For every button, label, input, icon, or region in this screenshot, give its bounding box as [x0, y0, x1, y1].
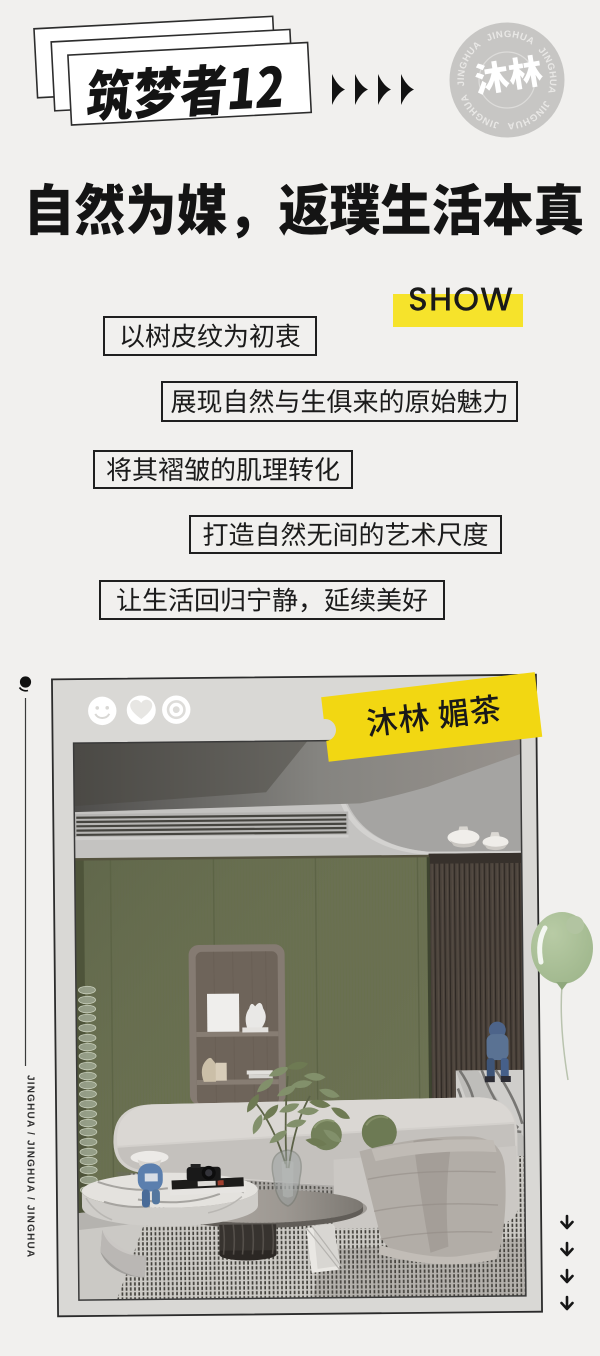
svg-text:JINGHUA / JINGHUA / JINGHUA: JINGHUA / JINGHUA / JINGHUA	[25, 1075, 36, 1258]
